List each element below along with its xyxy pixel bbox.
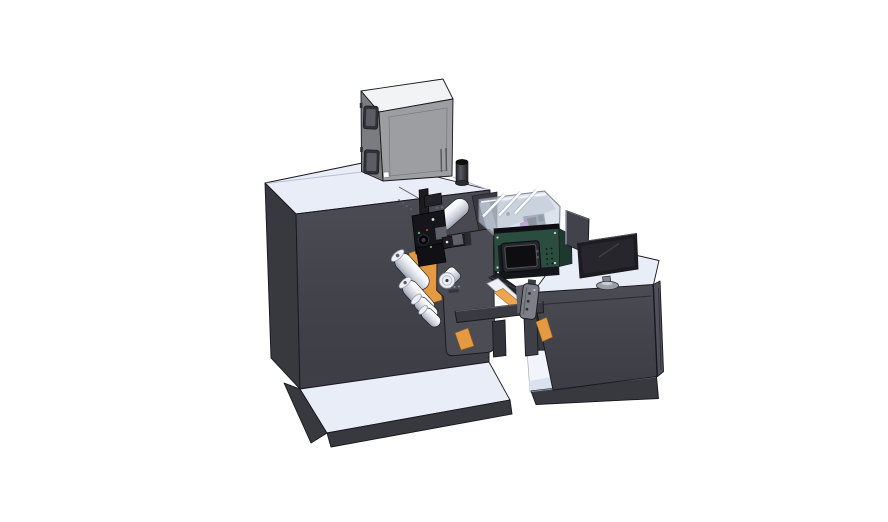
cabinet-label bbox=[383, 172, 389, 178]
cabinet-window-1: Inspection window bbox=[363, 106, 378, 129]
hinge-bottom bbox=[360, 147, 363, 152]
inkjet-control-screen[interactable]: Control touchscreen bbox=[497, 241, 541, 273]
cad-render-stage: CAD model viewport Unwinder cabinet bbox=[0, 0, 888, 522]
exhaust-cylinder: Exhaust stack bbox=[455, 159, 468, 185]
cabinet-window-2: Inspection window bbox=[364, 150, 380, 175]
cad-viewport[interactable]: CAD model viewport Unwinder cabinet bbox=[0, 0, 888, 522]
hinge-top bbox=[360, 103, 363, 108]
machine-left-face bbox=[265, 183, 300, 389]
electrical-cabinet: Electrical control box Inspection window… bbox=[360, 79, 453, 181]
tension-lever[interactable]: Tension lever bbox=[516, 279, 540, 320]
